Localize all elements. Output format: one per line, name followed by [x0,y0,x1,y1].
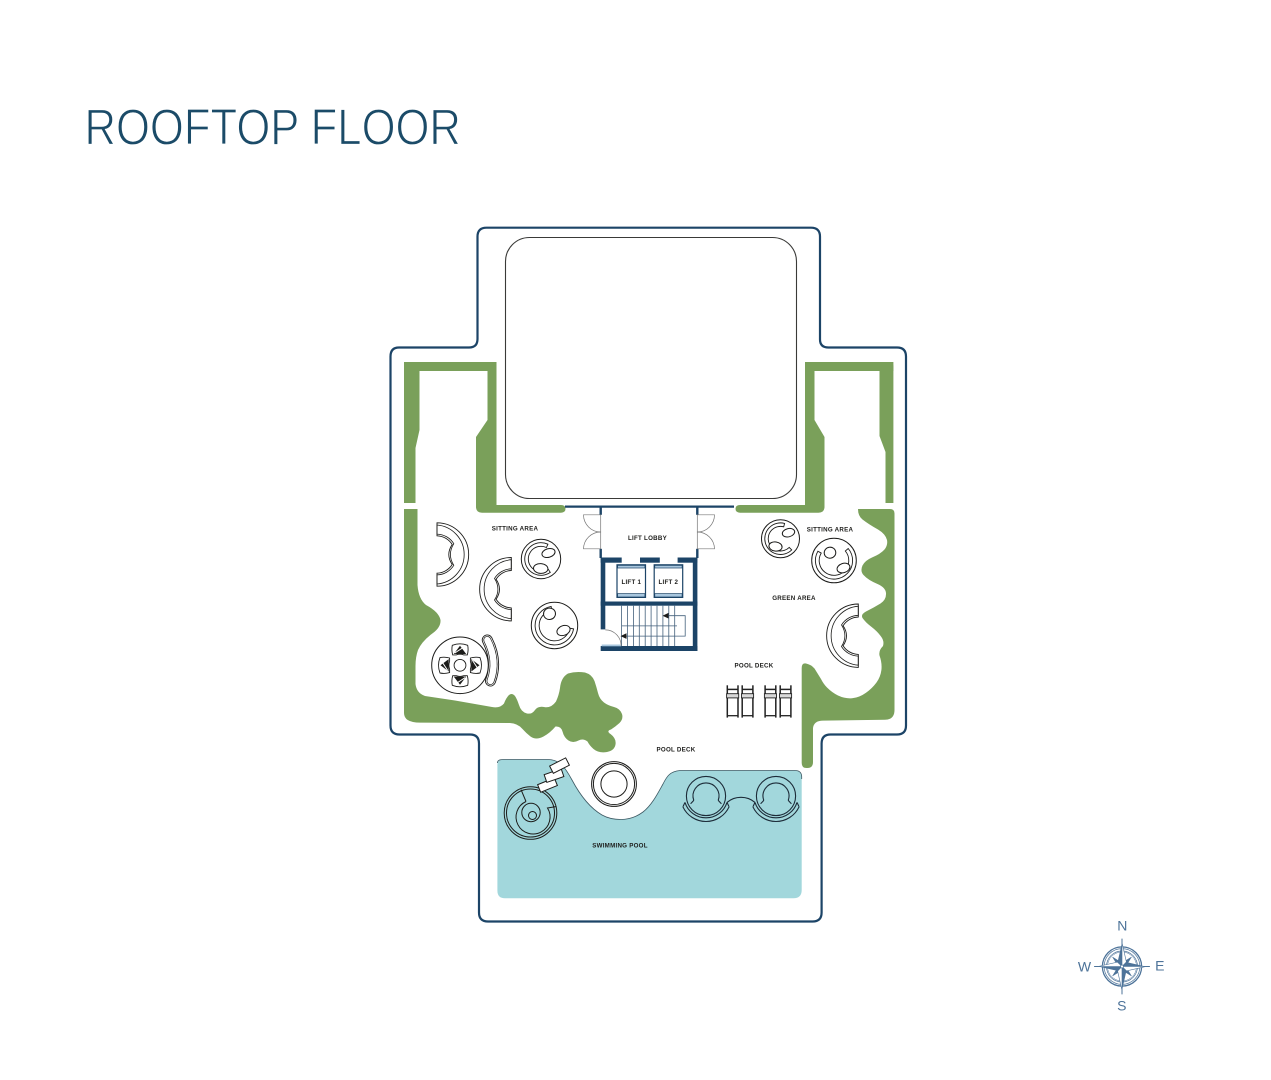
svg-text:E: E [1155,958,1164,974]
svg-text:SITTING AREA: SITTING AREA [807,527,854,534]
svg-text:ROOFTOP FLOOR: ROOFTOP FLOOR [85,99,461,156]
svg-text:LIFT LOBBY: LIFT LOBBY [628,535,668,542]
svg-text:POOL DECK: POOL DECK [735,663,774,670]
svg-text:W: W [1078,959,1092,975]
svg-text:S: S [1117,998,1126,1014]
svg-text:SITTING AREA: SITTING AREA [492,526,539,533]
svg-text:POOL DECK: POOL DECK [657,747,696,754]
svg-text:N: N [1117,918,1127,934]
svg-text:LIFT 1: LIFT 1 [621,579,641,586]
svg-text:SWIMMING POOL: SWIMMING POOL [592,843,648,850]
svg-text:GREEN AREA: GREEN AREA [772,595,816,602]
svg-text:LIFT 2: LIFT 2 [659,579,679,586]
